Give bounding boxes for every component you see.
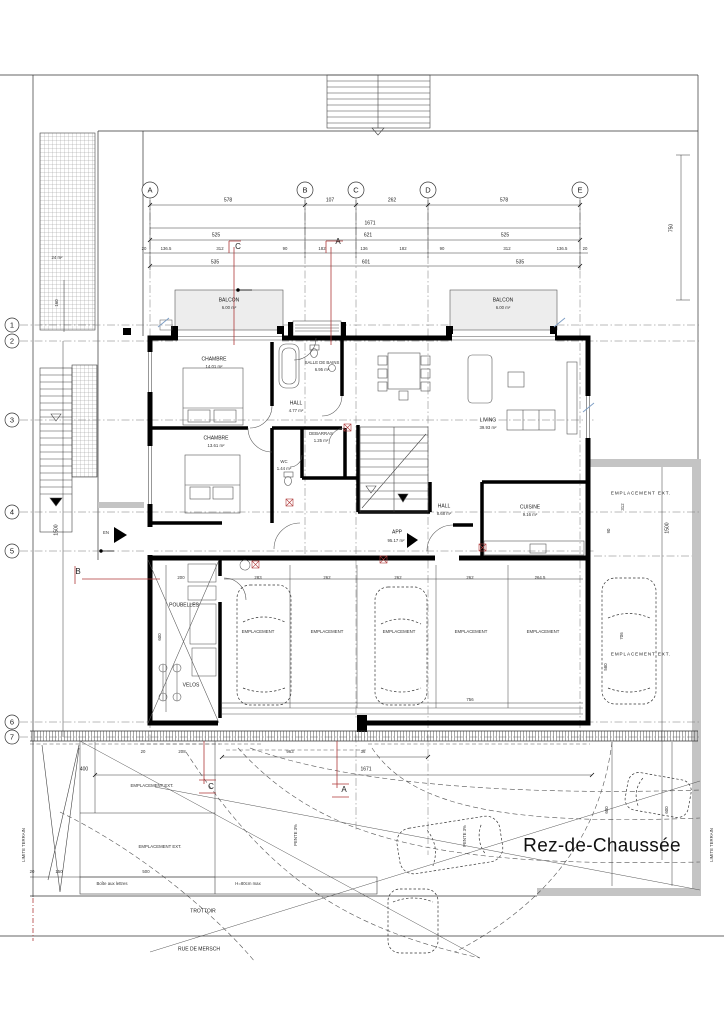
dimension-text: 706 bbox=[620, 632, 624, 639]
dimension-text: 262 bbox=[466, 576, 473, 580]
room-name: CHAMBRE bbox=[201, 358, 226, 363]
exterior-walls bbox=[150, 338, 588, 723]
dimension-text: 963 bbox=[286, 750, 293, 754]
grid-col-label: E bbox=[577, 186, 582, 194]
dimension-text: 1671 bbox=[360, 768, 371, 773]
room-area: 4.77 m² bbox=[289, 409, 304, 413]
dimension-text: 136.5 bbox=[161, 247, 172, 251]
dimension-text: 1500 bbox=[666, 522, 671, 533]
dimension-text: 136.5 bbox=[557, 247, 568, 251]
grid-row-label: 3 bbox=[10, 416, 14, 424]
room-name: POUBELLES bbox=[169, 604, 199, 609]
room-area: 1.25 m² bbox=[314, 439, 329, 443]
grid-col-label: B bbox=[302, 186, 307, 194]
dimension-text: 601 bbox=[362, 261, 370, 266]
room-area: 95.17 m² bbox=[388, 539, 405, 543]
dimension-text: 756 bbox=[466, 698, 473, 702]
entrance-label: EN bbox=[103, 531, 109, 535]
grid-row-label: 6 bbox=[10, 718, 14, 726]
limite-terrain-label: LIMITE TERRAIN bbox=[22, 828, 26, 862]
section-marker-lines bbox=[33, 241, 349, 941]
floor-title: Rez-de-Chaussée bbox=[523, 837, 681, 856]
room-area: 6.00 m² bbox=[222, 306, 237, 310]
dimension-text: 107 bbox=[326, 199, 334, 204]
room-area: 8.68 m² bbox=[437, 512, 452, 516]
parking-ext-label: EMPLACEMENT EXT. bbox=[611, 492, 671, 497]
room-area: 1.44 m² bbox=[277, 467, 292, 471]
grid-row-label: 2 bbox=[10, 337, 14, 345]
room-name: CUISINE bbox=[520, 506, 540, 511]
parking-ext-label: EMPLACEMENT EXT. bbox=[131, 784, 174, 788]
plan-linework bbox=[0, 0, 724, 1024]
room-name: BALCON bbox=[493, 299, 514, 304]
grid-row-label: 1 bbox=[10, 321, 14, 329]
room-area: 6.00 m² bbox=[496, 306, 511, 310]
room-name: HALL bbox=[290, 402, 303, 407]
floor-plan-drawing: A B C D E 1 2 3 4 5 6 7 578 107 262 578 … bbox=[0, 0, 724, 1024]
dimension-text: 20 bbox=[583, 247, 588, 251]
dimension-text: 264.5 bbox=[535, 576, 546, 580]
room-area: 13.61 m² bbox=[208, 444, 225, 448]
room-name: HALL bbox=[438, 505, 451, 510]
dimension-text: 400 bbox=[80, 768, 88, 773]
height-note-label: H=80cm max bbox=[235, 882, 260, 886]
dimension-text: 621 bbox=[364, 234, 372, 239]
parking-space-label: EMPLACEMENT bbox=[455, 630, 488, 634]
room-name: SALLE DE BAINS bbox=[305, 361, 340, 365]
grid-row-label: 5 bbox=[10, 547, 14, 555]
sidewalk-hatch bbox=[30, 731, 698, 741]
section-marker: C bbox=[235, 243, 241, 251]
dimension-text: 578 bbox=[224, 199, 232, 204]
exterior-stairs-left bbox=[40, 368, 72, 532]
room-name: LIVING bbox=[480, 419, 496, 424]
dimension-text: 525 bbox=[212, 234, 220, 239]
dimension-text: 262 bbox=[394, 576, 401, 580]
dimension-text: 750 bbox=[670, 224, 675, 232]
trottoir-label: TROTTOIR bbox=[190, 910, 215, 915]
room-name: BALCON bbox=[219, 299, 240, 304]
dimension-text: 150 bbox=[55, 870, 62, 874]
dimension-text: 600 bbox=[158, 633, 162, 640]
dim-ticks bbox=[93, 203, 594, 777]
grid-col-label: D bbox=[425, 186, 430, 194]
slope-label: PENTE 3% bbox=[463, 825, 467, 847]
dimension-text: 20 bbox=[142, 247, 147, 251]
dimension-text: 578 bbox=[500, 199, 508, 204]
parking-space-label: EMPLACEMENT bbox=[527, 630, 560, 634]
dimension-text: 208 bbox=[178, 750, 185, 754]
dimension-text: 500 bbox=[142, 870, 149, 874]
grid-col-label: C bbox=[353, 186, 358, 194]
dimension-text: 312 bbox=[216, 247, 223, 251]
furniture bbox=[183, 344, 584, 555]
dimension-text: 262 bbox=[388, 199, 396, 204]
dimension-text: 312 bbox=[621, 503, 625, 510]
grid-col-label: A bbox=[147, 186, 152, 194]
parking-space-label: EMPLACEMENT bbox=[242, 630, 275, 634]
dimension-text: 580 bbox=[604, 663, 608, 670]
dimension-text: 535 bbox=[211, 261, 219, 266]
dimension-text: 182 bbox=[318, 247, 325, 251]
dimension-text: 36 bbox=[361, 750, 366, 754]
dimension-text: 20 bbox=[30, 870, 35, 874]
dimension-text: 283 bbox=[254, 576, 261, 580]
entrance-porch bbox=[288, 321, 346, 337]
dimension-text: 20 bbox=[141, 750, 146, 754]
parking-space-label: EMPLACEMENT bbox=[311, 630, 344, 634]
mailbox-label: Boîte aux lettres bbox=[96, 882, 127, 886]
section-marker: A bbox=[335, 238, 340, 246]
grid-row-label: 7 bbox=[10, 733, 14, 741]
dimension-text: 1671 bbox=[364, 222, 375, 227]
room-area: 39.93 m² bbox=[480, 426, 497, 430]
room-area: 9.16 m² bbox=[523, 513, 538, 517]
dimension-text: 182 bbox=[399, 247, 406, 251]
dimension-text: 136 bbox=[360, 247, 367, 251]
limite-terrain-label: LIMITE TERRAIN bbox=[710, 828, 714, 862]
dimension-text: 90 bbox=[283, 247, 288, 251]
interior-walls bbox=[150, 338, 588, 723]
dimension-text: 90 bbox=[440, 247, 445, 251]
grid-lines bbox=[20, 198, 700, 855]
dimension-text: 160 bbox=[55, 299, 59, 306]
dimension-text: 200 bbox=[177, 576, 184, 580]
dimension-text: 90 bbox=[607, 529, 611, 534]
room-name: DEBARRAS bbox=[309, 432, 333, 436]
cars bbox=[237, 578, 693, 953]
parking-ext-label: EMPLACEMENT EXT. bbox=[139, 845, 182, 849]
room-name: CHAMBRE bbox=[203, 437, 228, 442]
street-label: RUE DE MERSCH bbox=[178, 948, 220, 953]
room-area: 24 m² bbox=[52, 256, 63, 260]
section-marker: C bbox=[208, 783, 214, 791]
dimension-text: 600 bbox=[665, 806, 669, 813]
room-area: 14.01 m² bbox=[206, 365, 223, 369]
parking-space-label: EMPLACEMENT bbox=[383, 630, 416, 634]
interior-stair bbox=[360, 427, 428, 512]
parking-ext-label: EMPLACEMENT EXT. bbox=[611, 653, 671, 658]
dimension-text: 525 bbox=[501, 234, 509, 239]
section-marker: B bbox=[75, 568, 80, 576]
dimension-text: 312 bbox=[503, 247, 510, 251]
room-name: APP bbox=[392, 531, 402, 536]
room-name: WC bbox=[280, 460, 287, 464]
room-name: VELOS bbox=[183, 684, 200, 689]
parking-bays bbox=[148, 560, 583, 723]
dimension-text: 1500 bbox=[55, 524, 60, 535]
grid-row-label: 4 bbox=[10, 508, 14, 516]
room-area: 6.95 m² bbox=[315, 368, 330, 372]
wall-openings bbox=[146, 334, 592, 732]
dimension-text: 262 bbox=[323, 576, 330, 580]
section-marker: A bbox=[341, 786, 346, 794]
dimension-text: 600 bbox=[605, 806, 609, 813]
slope-label: PENTE 3% bbox=[294, 824, 298, 846]
exterior-stairs-top bbox=[327, 75, 430, 135]
dimension-text: 535 bbox=[516, 261, 524, 266]
